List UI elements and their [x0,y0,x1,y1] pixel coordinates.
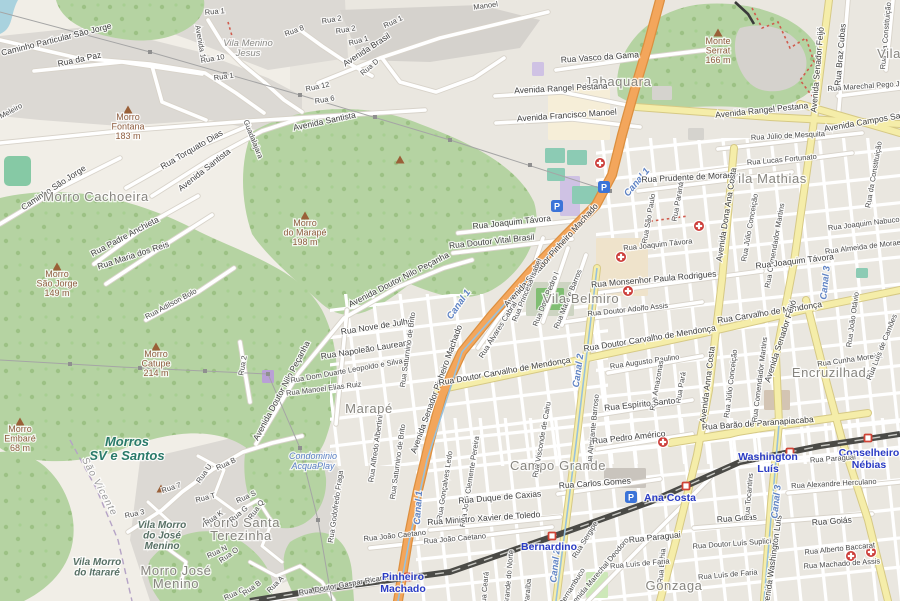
map-svg: PPPCaminho Particular São JorgeRua da Pa… [0,0,900,601]
svg-text:P: P [628,492,634,502]
label-vila-mathias: Vila Mathias [729,171,807,186]
label-vila-belmiro: Vila Belmiro [543,291,619,306]
power-pylon [316,518,320,522]
building-pitch-5 [856,268,868,278]
parking-icon: P [551,200,563,212]
power-pylon [298,93,302,97]
label-morro-fontana: MorroFontana183 m [111,112,144,141]
map-canvas[interactable]: PPPCaminho Particular São JorgeRua da Pa… [0,0,900,601]
label-pinheiro-machado: PinheiroMachado [380,571,426,595]
label-campo-grande: Campo Grande [510,458,606,473]
building-stadium-left [4,156,31,186]
parking-icon: P [625,491,637,503]
station-icon [549,533,556,540]
area-water-top-left [0,0,18,34]
label-rua-1: Rua 1 [204,6,225,17]
station-icon [683,483,690,490]
building-lavender-block-2 [532,62,544,76]
hospital-icon [595,158,606,169]
label-morro-cachoeira: Morro Cachoeira [43,189,149,204]
label-s-o-vicente: São Vicente [79,456,119,518]
building-pitch-2 [567,150,587,165]
power-pylon [448,138,452,142]
building-purple-building [262,370,274,383]
label-monte-serrat: MonteSerrat166 m [705,36,730,65]
power-pylon [373,115,377,119]
label-morro-catupe: MorroCatupe214 m [141,349,170,378]
label-vila-morro-do-itarar: Vila Morrodo Itararé [73,557,122,579]
hospital-icon [694,221,705,232]
label-vila: Vila [877,46,900,61]
station-icon [865,435,872,442]
label-gonzaga: Gonzaga [646,578,703,593]
label-condominio-acquaplay: CondominioAcquaPlay [289,451,337,471]
building-industrial-1 [652,86,672,100]
power-pylon [528,163,532,167]
svg-text:P: P [554,201,560,211]
hospital-icon [623,286,634,297]
power-pylon [298,446,302,450]
label-bernardino: Bernardino [521,541,577,553]
label-ana-costa: Ana Costa [644,492,696,504]
building-pitch-1 [545,148,565,163]
label-marap: Marapé [345,401,393,416]
label-para-ba: Paraíba [522,577,533,601]
area-hill-embare [0,452,74,601]
building-industrial-2 [688,128,704,140]
power-pylon [203,369,207,373]
label-canal-1: Canal 1 [412,491,425,525]
label-encruzilhada: Encruzilhada [792,365,875,380]
label-vila-morro-do-jos-menino: Vila Morrodo JoséMenino [138,520,187,552]
power-pylon [68,362,72,366]
power-pylon [266,372,270,376]
hospital-icon [616,252,627,263]
parking-icon: P [598,181,610,193]
power-pylon [148,50,152,54]
svg-text:P: P [601,182,607,192]
